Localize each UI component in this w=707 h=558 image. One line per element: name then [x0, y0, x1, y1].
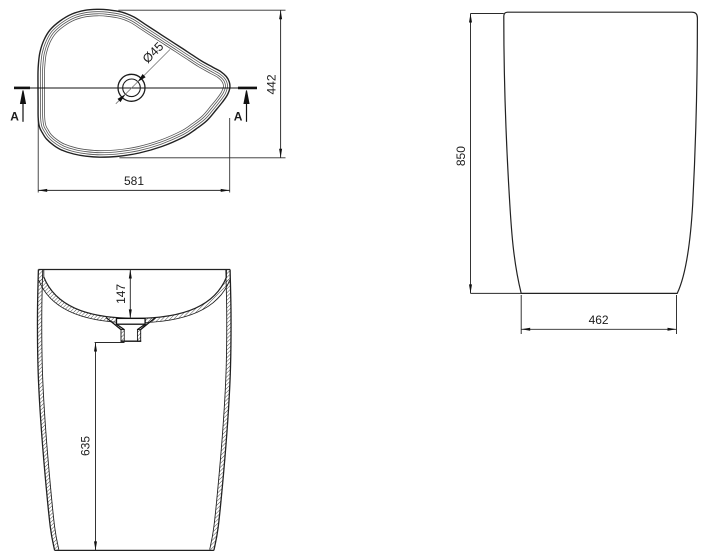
svg-text:850: 850: [454, 146, 468, 166]
svg-text:581: 581: [124, 174, 144, 188]
svg-text:A: A: [234, 110, 243, 124]
svg-text:A: A: [10, 110, 19, 124]
svg-text:635: 635: [79, 436, 93, 456]
svg-text:147: 147: [114, 284, 128, 304]
svg-text:462: 462: [589, 313, 609, 327]
svg-text:442: 442: [265, 74, 279, 94]
